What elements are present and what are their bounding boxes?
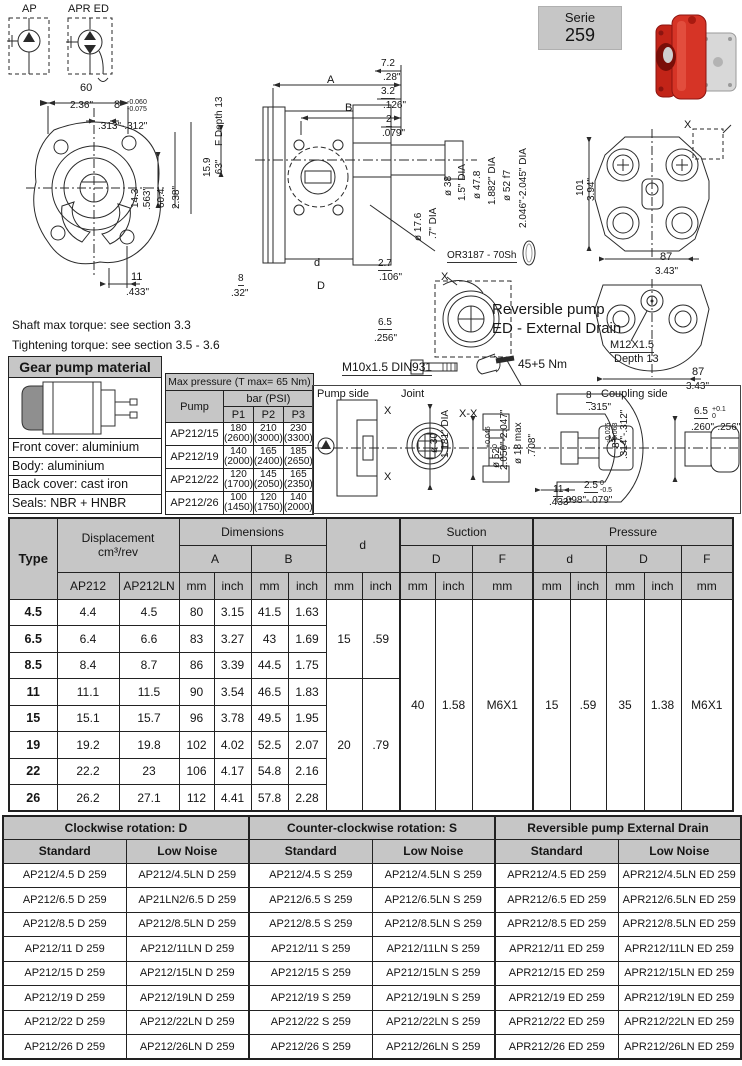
unit: inch [362,572,400,599]
cell: 2.07 [288,732,326,759]
pressure-f-header: F [681,545,733,572]
type-cell: 4.5 [9,599,57,626]
table-row: 4.5 4.4 4.5 80 3.15 41.5 1.63 15 .59 40 … [9,599,733,626]
pump-name: AP212/15 [166,423,224,446]
type-header: Type [9,518,57,599]
order-row: AP212/22 D 259 AP212/22LN D 259 AP212/22… [3,1010,741,1035]
dim-8-coupling: 8 [586,390,592,403]
part-number: AP212/22LN D 259 [126,1010,249,1035]
max-pressure-title: Max pressure (T max= 65 Nm) [166,374,314,391]
pump-side-icon [9,378,159,438]
d-mm-group2: 20 [326,679,362,812]
order-row: AP212/26 D 259 AP212/26LN D 259 AP212/26… [3,1035,741,1060]
part-number: AP212/6.5LN S 259 [372,888,495,913]
unit: inch [644,572,681,599]
p-cell: 120(1700) [224,469,254,492]
unit: inch [288,572,326,599]
cell: 8.4 [57,652,119,679]
series-number: 259 [539,25,621,46]
material-box: Gear pump material Front cover: aluminiu… [8,356,162,514]
dim-314in: .314"-.312" [619,410,631,459]
cell: 44.5 [251,652,288,679]
part-number: AP21LN2/6.5 D 259 [126,888,249,913]
unit: inch [214,572,251,599]
cell: 80 [179,599,214,626]
material-title: Gear pump material [9,357,161,378]
part-number: AP212/22 D 259 [3,1010,126,1035]
part-number: APR212/8.5 ED 259 [495,912,618,937]
pressure-d-header: d [533,545,606,572]
dim-dia-52-tol: ø 52+0.0460 [485,426,497,468]
unit: mm [400,572,435,599]
dim-dia-47-8: ø 47.8 [472,171,484,199]
cell: 1.69 [288,626,326,653]
suction-d-mm: 40 [400,599,435,811]
order-row: AP212/6.5 D 259 AP21LN2/6.5 D 259 AP212/… [3,888,741,913]
part-number: AP212/26LN D 259 [126,1035,249,1060]
max-pressure-table: Max pressure (T max= 65 Nm) Pump bar (PS… [165,373,314,515]
cell: 2.16 [288,758,326,785]
cell: 8.7 [119,652,179,679]
dim-6-5-tol: +0.10 [712,406,726,420]
p3-header: P3 [283,407,313,423]
suction-d-inch: 1.58 [435,599,472,811]
cell: 22.2 [57,758,119,785]
part-number: AP212/26 S 259 [249,1035,372,1060]
cell: 49.5 [251,705,288,732]
detail-x-label: X [441,271,448,284]
cell: 27.1 [119,785,179,812]
material-seals: Seals: NBR + HNBR [9,495,161,513]
material-image [9,378,161,439]
pressure-header: Pressure [533,518,733,545]
dim-3-2: 3.2 [381,86,395,99]
part-number: AP212/22LN S 259 [372,1010,495,1035]
part-number: AP212/6.5 D 259 [3,888,126,913]
part-number: APR212/26LN ED 259 [618,1035,741,1060]
dim-098in: .098"-.079" [563,495,612,507]
m12-label: M12X1.5 [610,339,654,353]
part-number: APR212/4.5 ED 259 [495,863,618,888]
bolt-spec-label: M10x1.5 DIN931 [342,361,432,376]
part-number: AP212/15LN D 259 [126,961,249,986]
group-reversible: Reversible pump External Drain [495,816,741,840]
dim-433in: .433" [126,287,149,299]
dim-87-bottom: 87 [692,366,704,379]
cell: 4.41 [214,785,251,812]
cell: 2.28 [288,785,326,812]
part-number: AP212/4.5LN S 259 [372,863,495,888]
o-ring-label: OR3187 - 70Sh [447,250,517,263]
type-cell: 19 [9,732,57,759]
dim-2-38in: 2.38" [171,186,183,209]
cell: 11.1 [57,679,119,706]
displacement-header: Displacementcm³/rev [57,518,179,572]
cell: 3.39 [214,652,251,679]
dim-563in: .563" [142,187,154,210]
dim-106in: .106" [379,272,402,284]
dim-1-5in-dia: 1.5" DIA [457,164,469,201]
cell: 46.5 [251,679,288,706]
section-xx-label: X-X [459,408,477,421]
dim-7in-dia: .7" DIA [428,208,440,239]
material-front-cover: Front cover: aluminium [9,439,161,458]
suction-header: Suction [400,518,533,545]
dim-708in: .708" [527,434,539,457]
p-cell: 185(2650) [283,446,313,469]
order-row: AP212/19 D 259 AP212/19LN D 259 AP212/19… [3,986,741,1011]
d-inch-group1: .59 [362,599,400,679]
dim-2-5: 2.5 [584,480,598,493]
dim-87-top: 87 [660,251,672,264]
dim-313in: .313"-.312" [98,121,147,133]
part-number: AP212/8.5 D 259 [3,912,126,937]
dim-15-9: 15.9 [202,158,214,177]
cell: 112 [179,785,214,812]
d-group-header: d [326,518,400,572]
part-number: AP212/8.5LN D 259 [126,912,249,937]
cell: 3.27 [214,626,251,653]
part-number: APR212/4.5LN ED 259 [618,863,741,888]
datasheet-page: AP APR ED Serie 259 [0,0,742,1066]
part-number: AP212/15LN S 259 [372,961,495,986]
dim-1-181in-dia: 1.181" DIA [440,410,452,458]
dim-7-2: 7.2 [381,58,395,70]
unit: mm [326,572,362,599]
pump-product-image [648,5,740,105]
cell: 86 [179,652,214,679]
back-x-label: X [684,119,691,132]
dim-6-5-stub: 6.5 [694,406,708,419]
section-x-top: X [384,405,391,418]
part-number: APR212/19LN ED 259 [618,986,741,1011]
cell: 19.8 [119,732,179,759]
pump-header: Pump [166,391,224,423]
dim-f-depth-13: F Depth 13 [214,97,226,146]
dim-2-050in: 2.050"-2.047" [499,410,511,470]
cell: 1.75 [288,652,326,679]
dim-60-4: 60.4 [156,189,168,208]
pressure-row: AP212/22 120(1700) 145(2050) 165(2350) [166,469,314,492]
type-cell: 15 [9,705,57,732]
section-x-bottom: X [384,471,391,484]
cell: 23 [119,758,179,785]
part-number: AP212/8.5LN S 259 [372,912,495,937]
part-number: APR212/15 ED 259 [495,961,618,986]
m12-depth-label: Depth 13 [614,353,659,366]
p-cell: 145(2050) [253,469,283,492]
dim-3-43in-top: 3.43" [655,266,678,278]
part-number: AP212/26 D 259 [3,1035,126,1060]
pressure-D-header: D [606,545,681,572]
cell: 3.15 [214,599,251,626]
d-inch-group2: .79 [362,679,400,812]
ap212ln-header: AP212LN [119,572,179,599]
group-clockwise: Clockwise rotation: D [3,816,249,840]
cell: 41.5 [251,599,288,626]
pump-name: AP212/19 [166,446,224,469]
dim-a-label: A [327,74,334,87]
part-number: AP212/8.5 S 259 [249,912,372,937]
dim-60: 60 [80,82,92,95]
joint-label: Joint [401,388,424,401]
col-a-header: A [179,545,251,572]
part-number: APR212/22 ED 259 [495,1010,618,1035]
type-cell: 11 [9,679,57,706]
coupling-side-label: Coupling side [601,388,668,401]
unit: inch [570,572,606,599]
part-number: APR212/15LN ED 259 [618,961,741,986]
cell: 106 [179,758,214,785]
dim-14-3: 14.3 [130,189,142,208]
cell: 4.4 [57,599,119,626]
order-row: AP212/4.5 D 259 AP212/4.5LN D 259 AP212/… [3,863,741,888]
cell: 4.17 [214,758,251,785]
cell: 90 [179,679,214,706]
group-counter-clockwise: Counter-clockwise rotation: S [249,816,495,840]
dim-8-key-tol: 8-0.025-0.063 [605,423,617,448]
dim-2-046in-dia: 2.046"-2.045" DIA [518,148,530,228]
part-number: APR212/6.5 ED 259 [495,888,618,913]
dim-d-label: d [314,257,320,270]
pump-name: AP212/22 [166,469,224,492]
dim-256in: .256" [374,333,397,345]
dim-315in: .315" [588,402,611,414]
cell: 57.8 [251,785,288,812]
p-cell: 165(2350) [283,469,313,492]
dim-6-5: 6.5 [378,317,392,330]
cell: 3.54 [214,679,251,706]
pressure-D-inch: 1.38 [644,599,681,811]
part-number: AP212/19 D 259 [3,986,126,1011]
part-number: APR212/19 ED 259 [495,986,618,1011]
cell: 1.83 [288,679,326,706]
cell: 4.5 [119,599,179,626]
dim-260in: .260"-.256" [691,422,740,434]
dimensions-header: Dimensions [179,518,326,545]
unit: mm [251,572,288,599]
dim-079in: .079" [382,128,405,140]
dim-D-label: D [317,280,325,293]
suction-f: M6X1 [472,599,533,811]
dim-126in: .126" [383,100,406,112]
part-number: APR212/26 ED 259 [495,1035,618,1060]
p-cell: 140(2000) [224,446,254,469]
cell: 6.6 [119,626,179,653]
pressure-D-mm: 35 [606,599,644,811]
cell: 102 [179,732,214,759]
cell: 4.02 [214,732,251,759]
p2-header: P2 [253,407,283,423]
p-cell: 140(2000) [283,492,313,515]
part-number: AP212/4.5 S 259 [249,863,372,888]
cell: 52.5 [251,732,288,759]
pump-side-label: Pump side [317,388,369,401]
pressure-f: M6X1 [681,599,733,811]
cell: 15.7 [119,705,179,732]
order-row: AP212/15 D 259 AP212/15LN D 259 AP212/15… [3,961,741,986]
dim-11: 11 [131,271,142,284]
order-row: AP212/11 D 259 AP212/11LN D 259 AP212/11… [3,937,741,962]
pressure-d-inch: .59 [570,599,606,811]
bar-psi-header: bar (PSI) [224,391,314,407]
dim-8-tolerance: -0.060-0.075 [127,99,147,113]
type-cell: 22 [9,758,57,785]
p-cell: 180(2600) [224,423,254,446]
cell: 15.1 [57,705,119,732]
part-number: AP212/26LN S 259 [372,1035,495,1060]
series-badge: Serie 259 [538,6,622,50]
series-label: Serie [539,10,621,25]
material-body: Body: aluminium [9,458,161,477]
part-number: APR212/6.5LN ED 259 [618,888,741,913]
dim-2: 2 [386,114,392,127]
part-number: AP212/15 D 259 [3,961,126,986]
type-cell: 6.5 [9,626,57,653]
dim-8: 8 [114,99,120,112]
part-number: APR212/8.5LN ED 259 [618,912,741,937]
p-cell: 100(1450) [224,492,254,515]
type-cell: 26 [9,785,57,812]
section-view-drawing [205,55,540,385]
part-number: AP212/19LN S 259 [372,986,495,1011]
sub-standard: Standard [495,840,618,864]
sub-standard: Standard [249,840,372,864]
dim-28in: .28" [383,72,400,84]
pressure-row: AP212/19 140(2000) 165(2400) 185(2650) [166,446,314,469]
part-number: AP212/19LN D 259 [126,986,249,1011]
dim-63in: .63" [214,160,226,177]
p-cell: 230(3300) [283,423,313,446]
p-cell: 210(3000) [253,423,283,446]
material-back-cover: Back cover: cast iron [9,476,161,495]
part-number: AP212/4.5LN D 259 [126,863,249,888]
note-tightening-torque: Tightening torque: see section 3.5 - 3.6 [12,338,220,352]
cell: 1.63 [288,599,326,626]
part-number: AP212/4.5 D 259 [3,863,126,888]
cell: 96 [179,705,214,732]
p-cell: 120(1750) [253,492,283,515]
cell: 1.95 [288,705,326,732]
dim-2-7: 2.7 [378,258,392,271]
dim-1-882in-dia: 1.882" DIA [487,157,499,205]
part-number: APR212/22LN ED 259 [618,1010,741,1035]
dim-2-36in: 2.36" [70,100,93,112]
dim-dia-38: ø 38 [443,176,455,196]
pump-name: AP212/26 [166,492,224,515]
part-number: AP212/11 D 259 [3,937,126,962]
p1-header: P1 [224,407,254,423]
hydraulic-symbols-icon [6,14,118,86]
cell: 19.2 [57,732,119,759]
cell: 11.5 [119,679,179,706]
ordering-table: Clockwise rotation: D Counter-clockwise … [2,815,742,1060]
unit: inch [435,572,472,599]
part-number: APR212/11LN ED 259 [618,937,741,962]
sub-standard: Standard [3,840,126,864]
cell: 3.78 [214,705,251,732]
pressure-row: AP212/26 100(1450) 120(1750) 140(2000) [166,492,314,515]
cell: 26.2 [57,785,119,812]
unit: mm [681,572,733,599]
part-number: AP212/11 S 259 [249,937,372,962]
p-cell: 165(2400) [253,446,283,469]
dim-8-bottom: 8 [238,273,244,286]
part-number: AP212/11LN S 259 [372,937,495,962]
type-cell: 8.5 [9,652,57,679]
part-number: APR212/11 ED 259 [495,937,618,962]
note-shaft-torque: Shaft max torque: see section 3.3 [12,318,191,332]
sub-low-noise: Low Noise [126,840,249,864]
cell: 43 [251,626,288,653]
dim-dia-18-max: ø 18 max [513,422,525,464]
part-number: AP212/15 S 259 [249,961,372,986]
order-row: AP212/8.5 D 259 AP212/8.5LN D 259 AP212/… [3,912,741,937]
dim-3-94in: 3.94" [586,178,598,201]
cell: 83 [179,626,214,653]
part-number: AP212/22 S 259 [249,1010,372,1035]
unit: mm [472,572,533,599]
sub-low-noise: Low Noise [618,840,741,864]
dim-2-5-tol: 0-0.5 [600,480,612,494]
torque-label: 45+5 Nm [518,358,567,372]
part-number: AP212/11LN D 259 [126,937,249,962]
suction-f-header: F [472,545,533,572]
dim-dia-17-6: ø 17.6 [413,213,425,241]
cell: 6.4 [57,626,119,653]
unit: mm [606,572,644,599]
unit: mm [179,572,214,599]
d-mm-group1: 15 [326,599,362,679]
suction-d-header: D [400,545,472,572]
ap212-header: AP212 [57,572,119,599]
dim-11-joint: 11 [553,484,563,497]
sub-low-noise: Low Noise [372,840,495,864]
pressure-d-mm: 15 [533,599,570,811]
part-number: AP212/6.5 S 259 [249,888,372,913]
col-b-header: B [251,545,326,572]
unit: mm [533,572,570,599]
pressure-row: AP212/15 180(2600) 210(3000) 230(3300) [166,423,314,446]
dim-32in: .32" [231,288,248,300]
dim-dia-52-f7: ø 52 f7 [502,170,514,201]
dimensions-table: Type Displacementcm³/rev Dimensions d Su… [8,517,734,812]
part-number: AP212/19 S 259 [249,986,372,1011]
dim-b-label: B [345,102,352,115]
cell: 54.8 [251,758,288,785]
